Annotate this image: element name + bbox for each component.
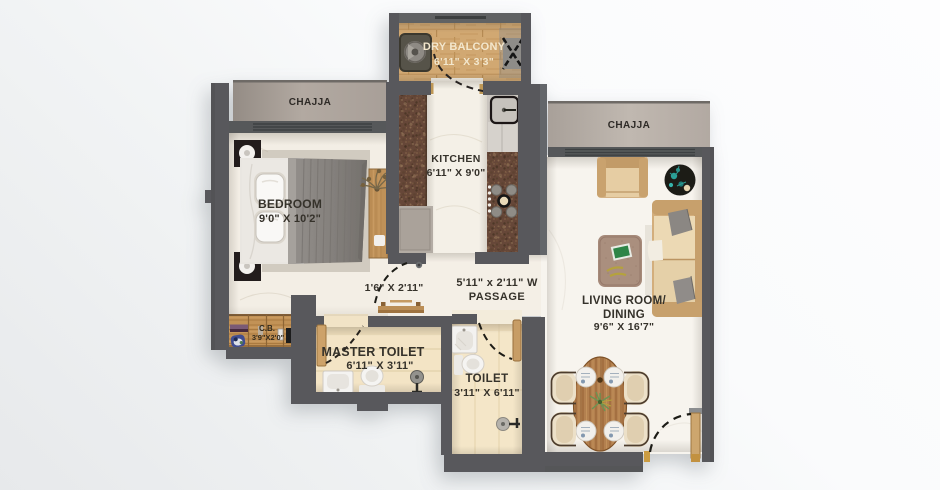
svg-text:MASTER TOILET: MASTER TOILET (321, 345, 424, 359)
svg-text:PASSAGE: PASSAGE (469, 291, 525, 303)
svg-text:C.B.: C.B. (259, 324, 275, 333)
svg-text:KITCHEN: KITCHEN (431, 153, 480, 165)
svg-text:DRY BALCONY: DRY BALCONY (423, 41, 506, 53)
svg-text:BEDROOM: BEDROOM (258, 197, 322, 211)
svg-text:1'6" X 2'11": 1'6" X 2'11" (365, 282, 424, 294)
svg-text:CHAJJA: CHAJJA (608, 120, 650, 131)
svg-text:TOILET: TOILET (465, 373, 508, 385)
svg-text:6'11" X 3'3": 6'11" X 3'3" (434, 56, 494, 68)
svg-text:9'6" X 16'7": 9'6" X 16'7" (594, 321, 655, 333)
svg-text:9'0" X 10'2": 9'0" X 10'2" (259, 213, 321, 225)
svg-text:6'11" X 3'11": 6'11" X 3'11" (346, 360, 413, 372)
svg-text:5'11" x 2'11" W: 5'11" x 2'11" W (456, 277, 538, 289)
svg-text:LIVING ROOM/: LIVING ROOM/ (582, 295, 667, 307)
svg-text:DINING: DINING (603, 309, 645, 321)
svg-text:3'11" X 6'11": 3'11" X 6'11" (454, 387, 520, 399)
svg-text:CHAJJA: CHAJJA (289, 97, 331, 108)
svg-text:3'9"X2'0": 3'9"X2'0" (252, 333, 285, 342)
svg-text:6'11" X 9'0": 6'11" X 9'0" (427, 167, 486, 179)
